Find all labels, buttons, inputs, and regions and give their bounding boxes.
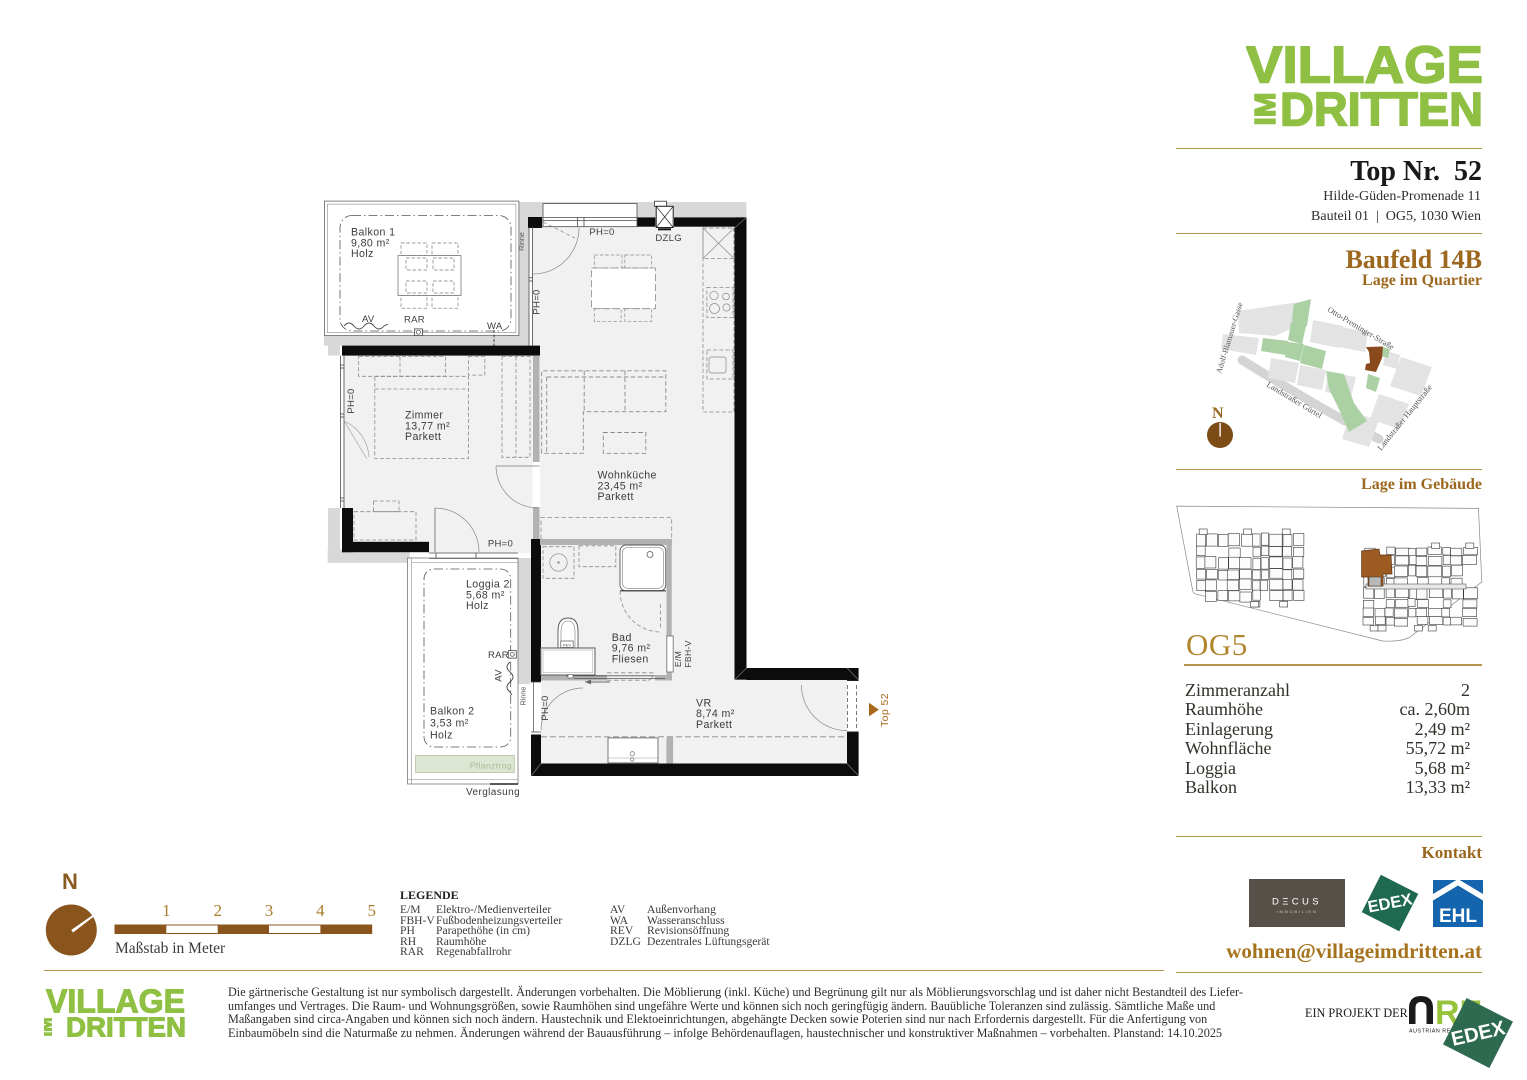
- svg-text:IMMOBILIEN: IMMOBILIEN: [1277, 909, 1318, 914]
- svg-text:Holz: Holz: [351, 248, 374, 260]
- svg-text:3,53 m²: 3,53 m²: [430, 717, 469, 729]
- svg-text:RAR: RAR: [488, 650, 509, 661]
- svg-text:AV: AV: [494, 669, 505, 682]
- svg-text:PH=0: PH=0: [589, 227, 614, 238]
- svg-text:AV: AV: [362, 314, 375, 325]
- svg-text:5: 5: [367, 901, 376, 920]
- svg-text:Parkett: Parkett: [696, 719, 732, 731]
- svg-text:Parkett: Parkett: [598, 491, 634, 503]
- svg-text:REV: REV: [563, 642, 572, 647]
- svg-text:Top 52: Top 52: [879, 693, 891, 727]
- svg-text:FBH-V: FBH-V: [683, 640, 693, 667]
- svg-text:2: 2: [213, 901, 222, 920]
- svg-text:Fliesen: Fliesen: [612, 653, 649, 665]
- svg-text:1: 1: [162, 901, 171, 920]
- svg-text:Parkett: Parkett: [405, 431, 441, 443]
- svg-text:Pflanztrog: Pflanztrog: [470, 761, 512, 771]
- svg-text:PH=0: PH=0: [532, 289, 543, 314]
- svg-text:Holz: Holz: [430, 729, 453, 741]
- svg-text:PH=0: PH=0: [488, 539, 513, 550]
- svg-text:4: 4: [316, 901, 325, 920]
- svg-text:Verglasung: Verglasung: [466, 787, 520, 798]
- svg-text:PH=0: PH=0: [346, 388, 357, 413]
- svg-text:DRITTEN: DRITTEN: [1280, 83, 1483, 132]
- svg-text:Rinne: Rinne: [519, 687, 528, 706]
- svg-text:IM: IM: [44, 1018, 56, 1037]
- svg-text:3: 3: [265, 901, 274, 920]
- svg-text:DRITTEN: DRITTEN: [66, 1012, 186, 1042]
- svg-text:IM: IM: [1250, 93, 1282, 126]
- svg-text:Rinne: Rinne: [517, 232, 526, 251]
- svg-text:DΞCUS: DΞCUS: [1272, 897, 1322, 908]
- svg-text:N: N: [1212, 405, 1224, 422]
- svg-text:Maßstab in Meter: Maßstab in Meter: [115, 940, 226, 957]
- svg-text:WA: WA: [487, 321, 503, 332]
- svg-text:EHL: EHL: [1439, 906, 1477, 927]
- svg-text:E/M: E/M: [673, 651, 683, 667]
- svg-text:RAR: RAR: [404, 315, 425, 326]
- svg-text:PH=0: PH=0: [540, 695, 551, 720]
- svg-text:DZLG: DZLG: [655, 233, 682, 244]
- svg-text:N: N: [62, 869, 78, 894]
- svg-text:Balkon 2: Balkon 2: [430, 706, 474, 718]
- svg-text:Holz: Holz: [466, 600, 489, 612]
